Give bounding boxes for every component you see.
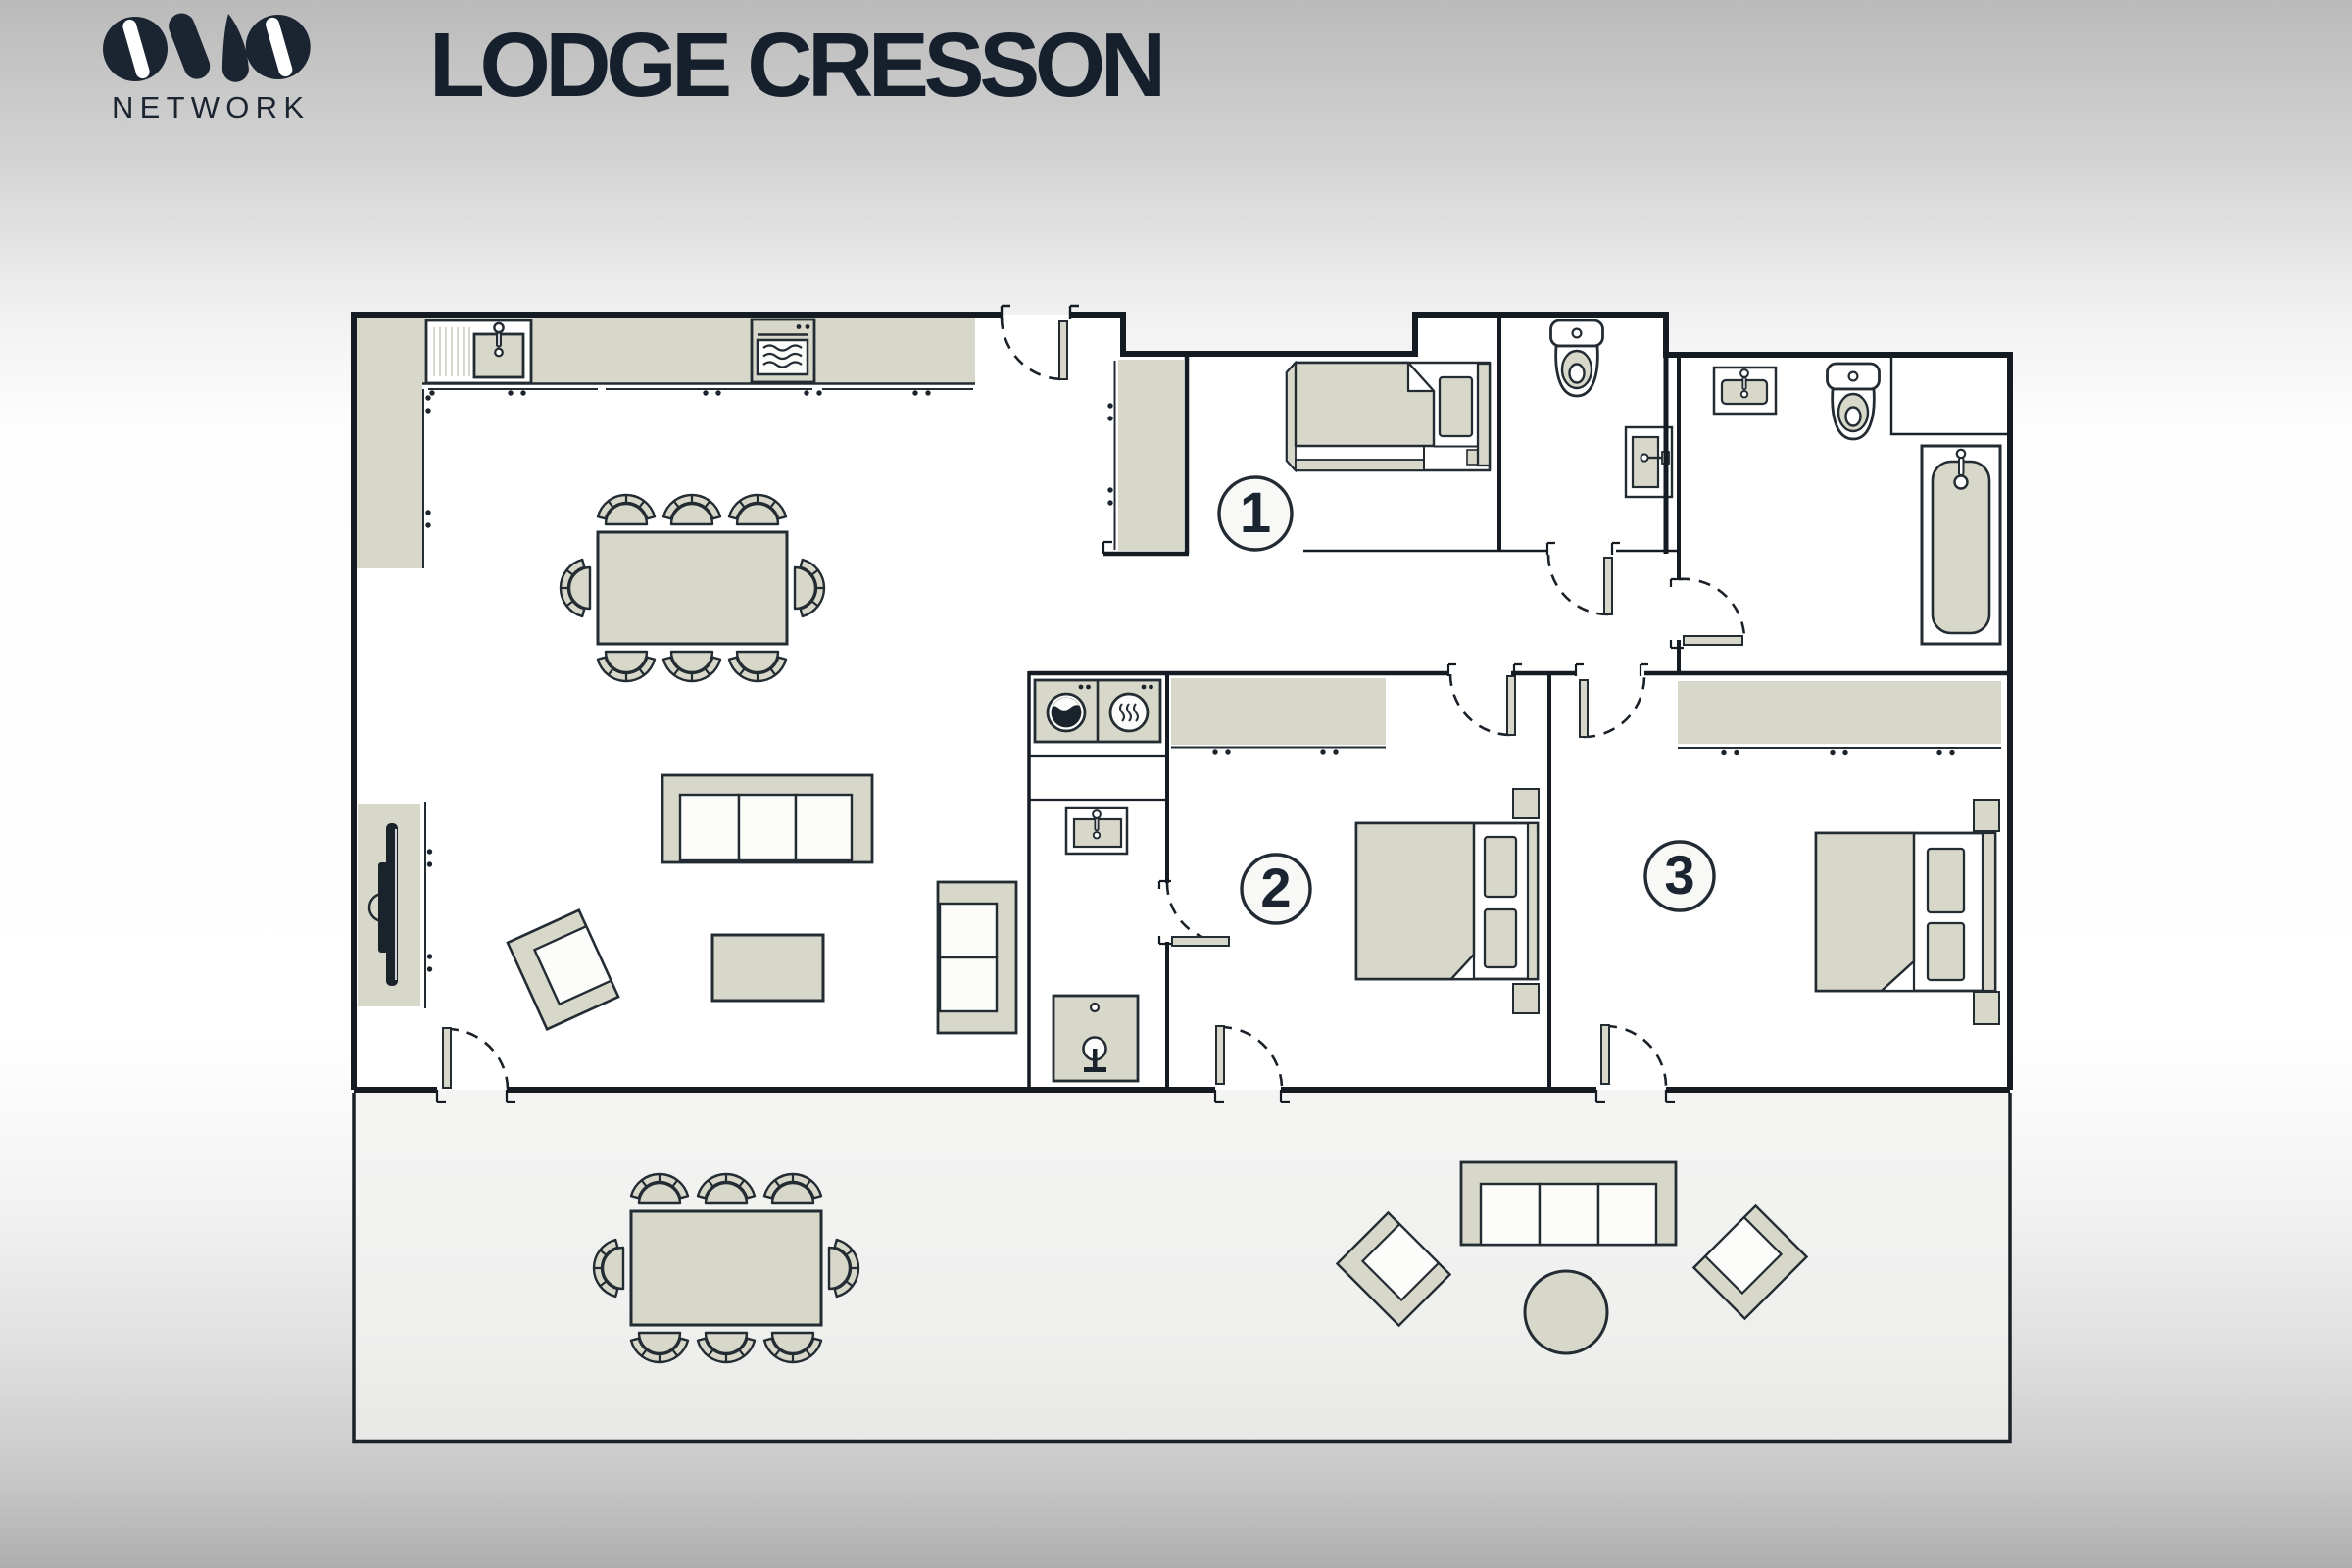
svg-text:1: 1 [1240,481,1271,545]
svg-text:2: 2 [1260,857,1291,918]
svg-text:LODGE CRESSON: LODGE CRESSON [429,14,1166,116]
svg-text:NETWORK: NETWORK [112,90,304,124]
svg-text:3: 3 [1664,844,1694,906]
